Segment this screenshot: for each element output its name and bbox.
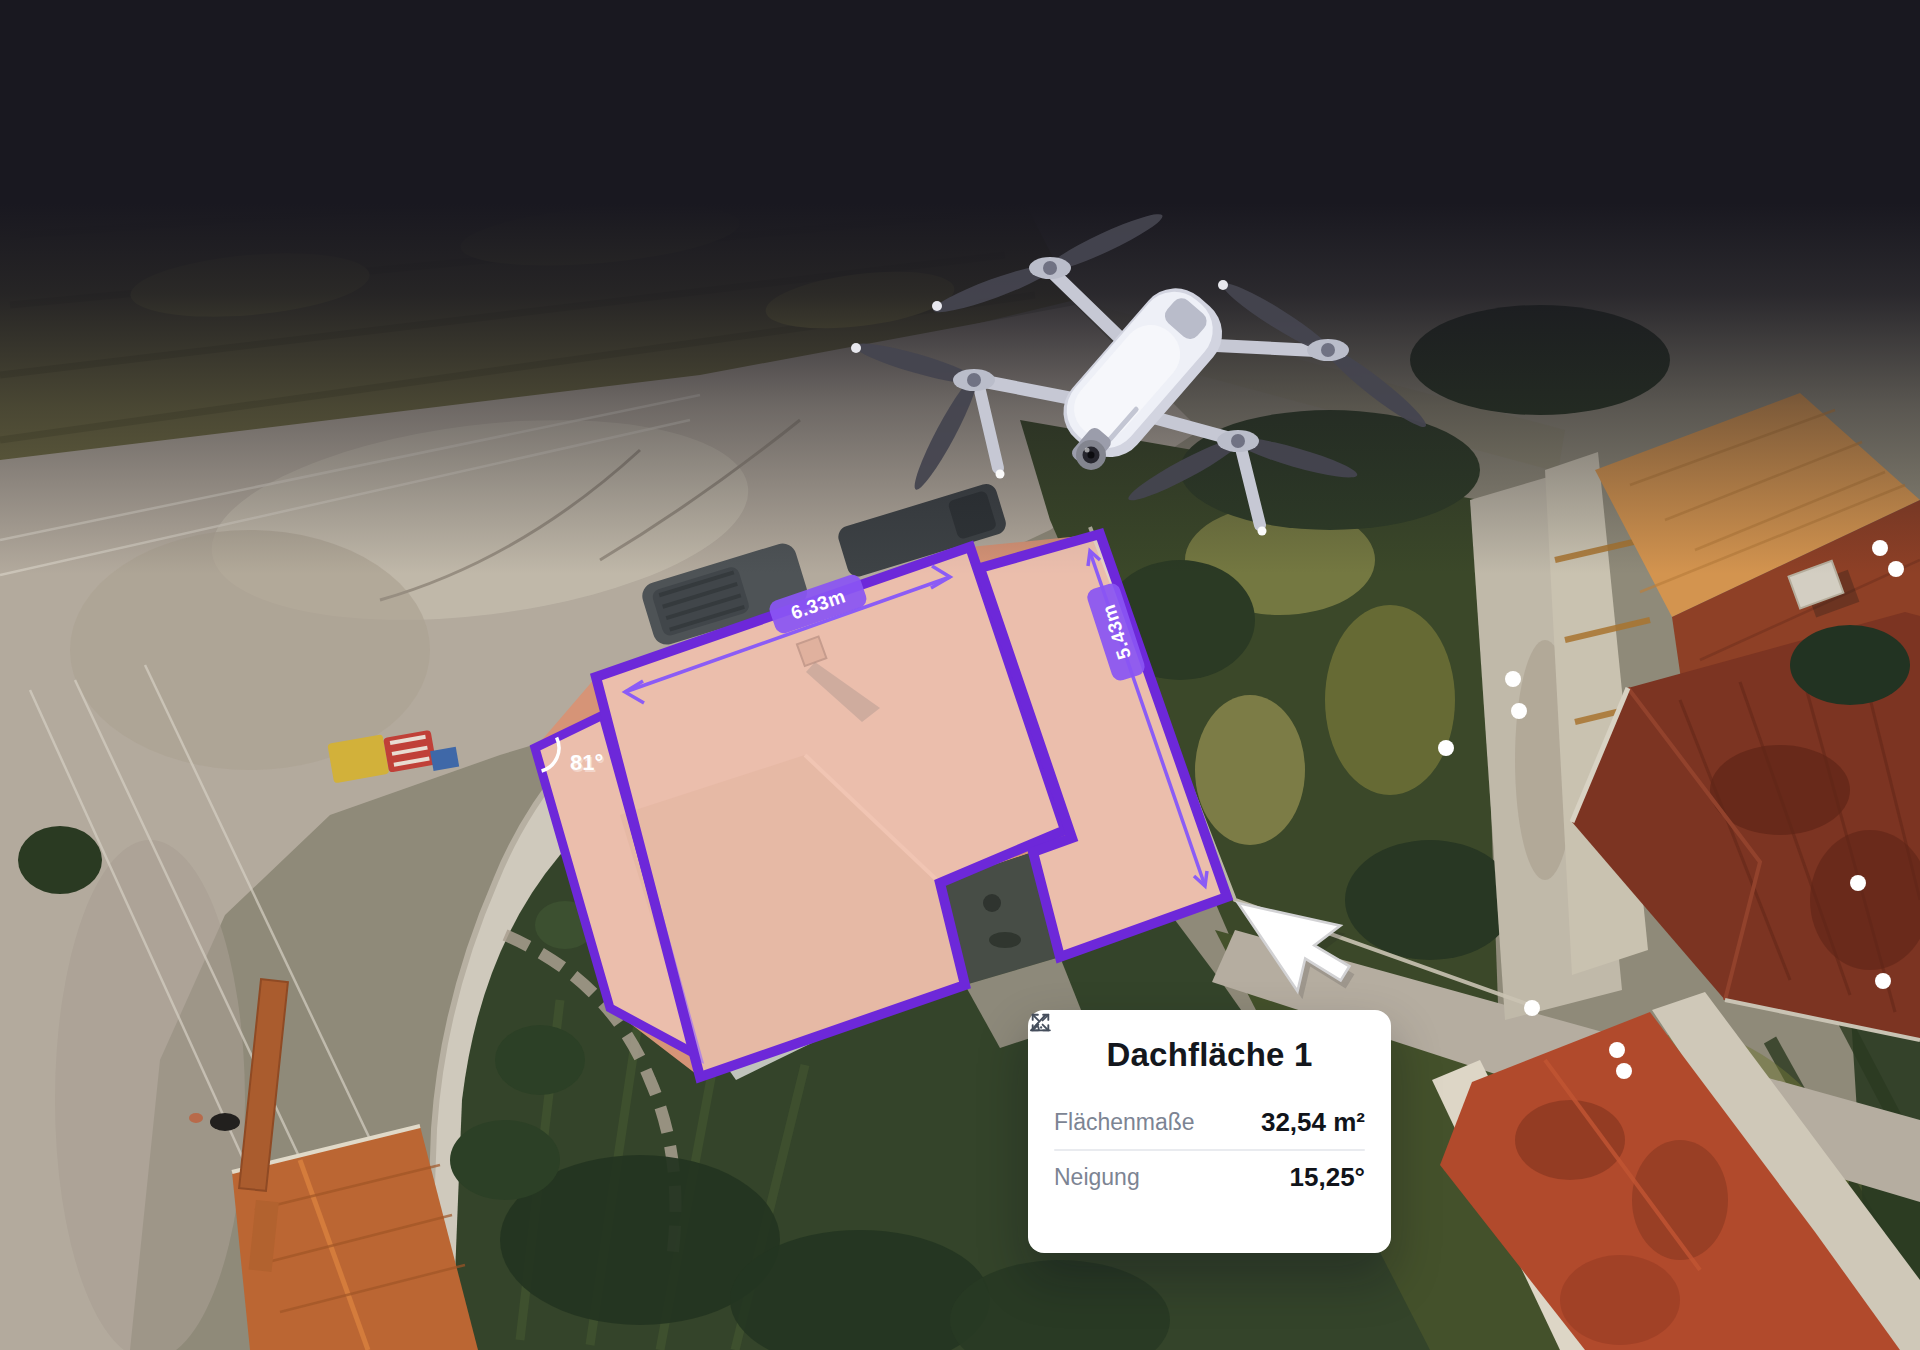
roof-card-title: Dachfläche 1 <box>1028 1036 1391 1074</box>
measurement-overlay: 6.33m 5.43m 81° 81° <box>0 0 1920 1350</box>
measure-point-dot[interactable] <box>1505 671 1521 687</box>
measure-point-dot[interactable] <box>1438 740 1454 756</box>
drone-illustration <box>851 207 1432 536</box>
slope-value: 15,25° <box>1290 1162 1365 1193</box>
slope-label: Neigung <box>1054 1164 1140 1191</box>
measure-points <box>1438 540 1904 1079</box>
measure-point-dot[interactable] <box>1872 540 1888 556</box>
roof-info-card: Dachfläche 1 Flächenmaße 32,54 m² <box>1028 1010 1391 1253</box>
measure-point-dot[interactable] <box>1616 1063 1632 1079</box>
area-label: Flächenmaße <box>1054 1109 1195 1136</box>
measure-point-dot[interactable] <box>1609 1042 1625 1058</box>
cursor-pointer-icon <box>1238 863 1371 1012</box>
drone-roof-measurement-screen: 6.33m 5.43m 81° 81° <box>0 0 1920 1350</box>
measure-point-dot[interactable] <box>1875 973 1891 989</box>
measure-point-dot[interactable] <box>1524 1000 1540 1016</box>
angle-text: 81° <box>570 750 603 775</box>
slope-row: Neigung 15,25° <box>1054 1151 1365 1204</box>
measure-point-dot[interactable] <box>1850 875 1866 891</box>
measure-point-dot[interactable] <box>1511 703 1527 719</box>
area-value: 32,54 m² <box>1261 1107 1365 1138</box>
slope-icon <box>1028 1010 1053 1035</box>
measure-point-dot[interactable] <box>1888 561 1904 577</box>
area-row: Flächenmaße 32,54 m² <box>1054 1096 1365 1149</box>
